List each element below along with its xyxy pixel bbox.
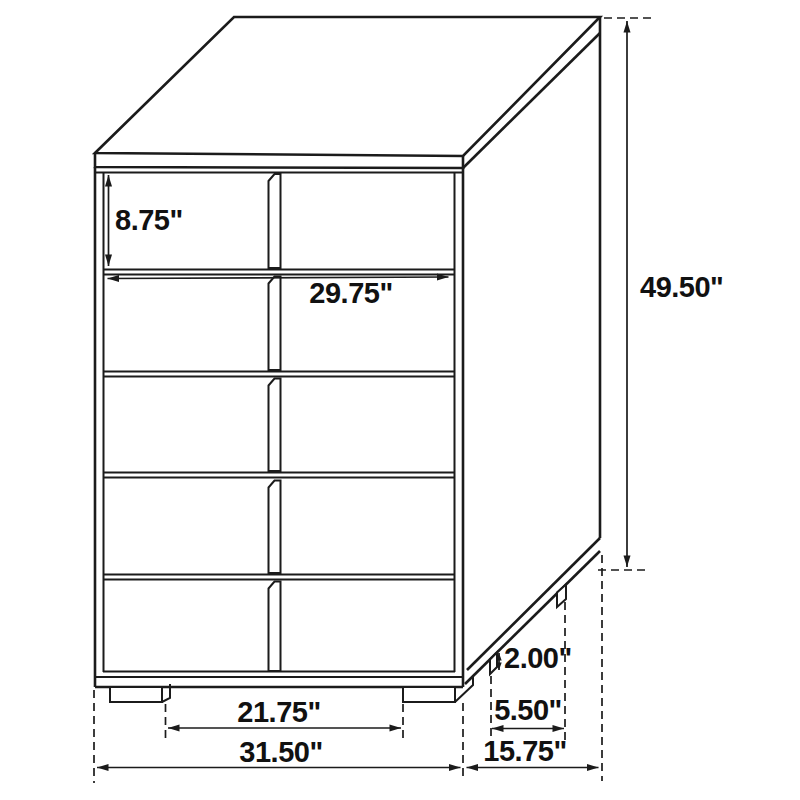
dimension-labels: 8.75" 29.75" 49.50" 2.00" 5.50" 21.75" 3… <box>115 204 723 768</box>
dim-label-leg-height: 2.00" <box>504 642 572 674</box>
dim-label-overall-width: 31.50" <box>239 736 322 768</box>
furniture-line-drawing: 8.75" 29.75" 49.50" 2.00" 5.50" 21.75" 3… <box>0 0 800 800</box>
diagram-canvas: 8.75" 29.75" 49.50" 2.00" 5.50" 21.75" 3… <box>0 0 800 800</box>
dim-label-side-leg-spacing: 5.50" <box>494 694 562 726</box>
dim-label-overall-height: 49.50" <box>640 271 723 303</box>
dim-label-overall-depth: 15.75" <box>483 735 566 767</box>
cabinet-feet <box>110 585 566 703</box>
dim-label-front-leg-spacing: 21.75" <box>237 696 320 728</box>
drawer-handles <box>269 174 281 671</box>
cabinet-top-face <box>95 17 600 168</box>
dim-label-drawer-front-width: 29.75" <box>309 277 392 309</box>
dim-label-top-drawer-height: 8.75" <box>115 204 183 236</box>
